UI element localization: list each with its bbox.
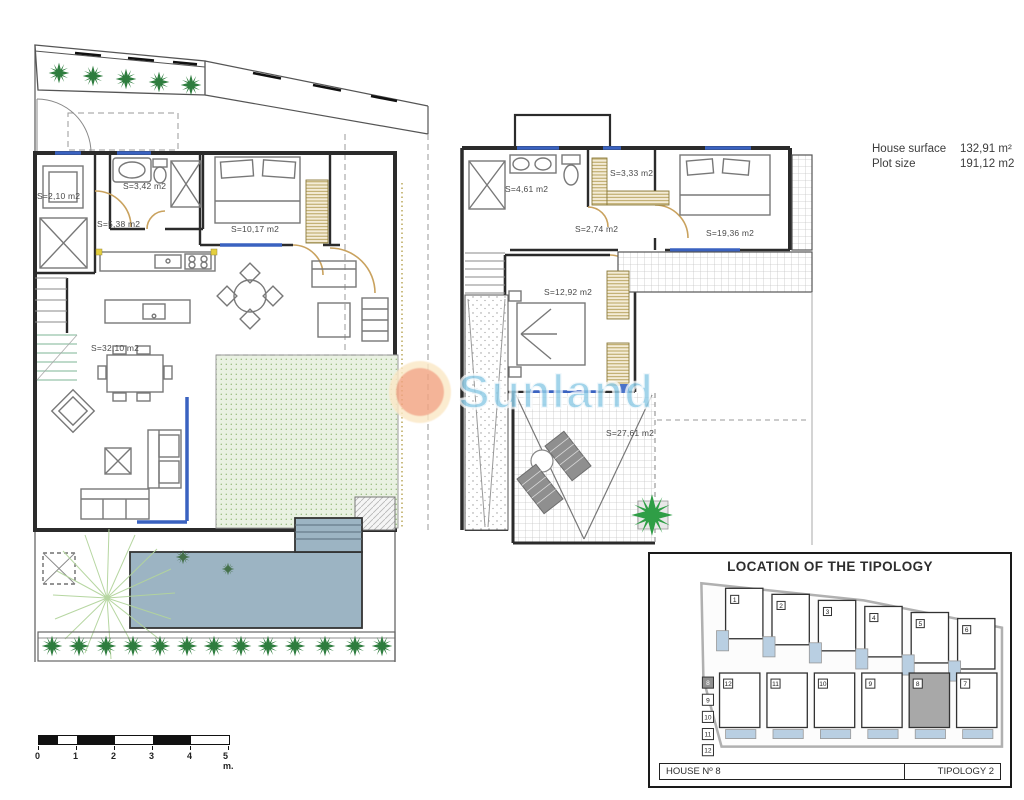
svg-text:8: 8: [916, 681, 920, 688]
pool: [130, 518, 362, 628]
scale-label-5m: 5 m.: [223, 751, 238, 771]
area-label-wardrobe: S=3,33 m2: [610, 168, 653, 178]
location-of-tipology-box: LOCATION OF THE TIPOLOGY: [648, 552, 1012, 788]
svg-text:8: 8: [706, 680, 710, 687]
plot-size-value: 191,12 m2: [960, 157, 1014, 172]
scale-label-2: 2: [111, 751, 116, 761]
house-number-label: HOUSE Nº 8: [659, 763, 905, 780]
location-title-bar: HOUSE Nº 8 TIPOLOGY 2: [659, 763, 1001, 780]
site-plan-drawing: 1 2 3 4 5 6: [657, 580, 1005, 760]
location-title: LOCATION OF THE TIPOLOGY: [650, 559, 1010, 574]
svg-text:4: 4: [872, 615, 876, 622]
area-label-storage: S=2,10 m2: [37, 191, 80, 201]
area-label-bedroom-gf: S=10,17 m2: [231, 224, 279, 234]
house-surface-value: 132,91 m²: [960, 142, 1012, 157]
scale-bar: 0 1 2 3 4 5 m.: [38, 735, 238, 765]
svg-text:9: 9: [869, 681, 873, 688]
area-label-living: S=32,10 m2: [91, 343, 139, 353]
svg-text:6: 6: [965, 627, 969, 634]
svg-text:7: 7: [963, 681, 967, 688]
door-swings: [95, 191, 375, 293]
surface-info-block: House surface 132,91 m² Plot size 191,12…: [872, 142, 1024, 172]
scale-label-4: 4: [187, 751, 192, 761]
area-label-bathroom-ff: S=4,61 m2: [505, 184, 548, 194]
svg-text:1: 1: [733, 597, 737, 604]
area-label-bedroom-2: S=12,92 m2: [544, 287, 592, 297]
area-label-terrace: S=27,61 m2: [606, 428, 654, 438]
tipology-label: TIPOLOGY 2: [905, 763, 1001, 780]
area-label-bedroom-main: S=19,36 m2: [706, 228, 754, 238]
scale-label-3: 3: [149, 751, 154, 761]
ground-floor-plan-drawing: [25, 33, 435, 681]
svg-text:12: 12: [724, 681, 732, 688]
svg-text:3: 3: [826, 609, 830, 616]
scale-label-0: 0: [35, 751, 40, 761]
plant-row-bottom: [42, 636, 393, 657]
svg-text:2: 2: [779, 603, 783, 610]
svg-text:5: 5: [918, 621, 922, 628]
svg-text:10: 10: [819, 681, 827, 688]
svg-text:10: 10: [704, 714, 712, 721]
svg-text:11: 11: [772, 681, 779, 688]
svg-text:11: 11: [705, 732, 712, 739]
house-surface-label: House surface: [872, 142, 960, 157]
svg-text:9: 9: [706, 697, 710, 704]
scale-label-1: 1: [73, 751, 78, 761]
scale-bar-segments: [38, 735, 230, 745]
area-label-hallway: S=5,38 m2: [97, 219, 140, 229]
svg-text:12: 12: [704, 748, 712, 755]
grass-plant: [53, 529, 175, 659]
floorplan-sheet: S=2,10 m2 S=3,42 m2 S=5,38 m2 S=10,17 m2…: [0, 0, 1024, 800]
area-label-bathroom-gf: S=3,42 m2: [123, 181, 166, 191]
plot-size-label: Plot size: [872, 157, 960, 172]
area-label-landing: S=2,74 m2: [575, 224, 618, 234]
